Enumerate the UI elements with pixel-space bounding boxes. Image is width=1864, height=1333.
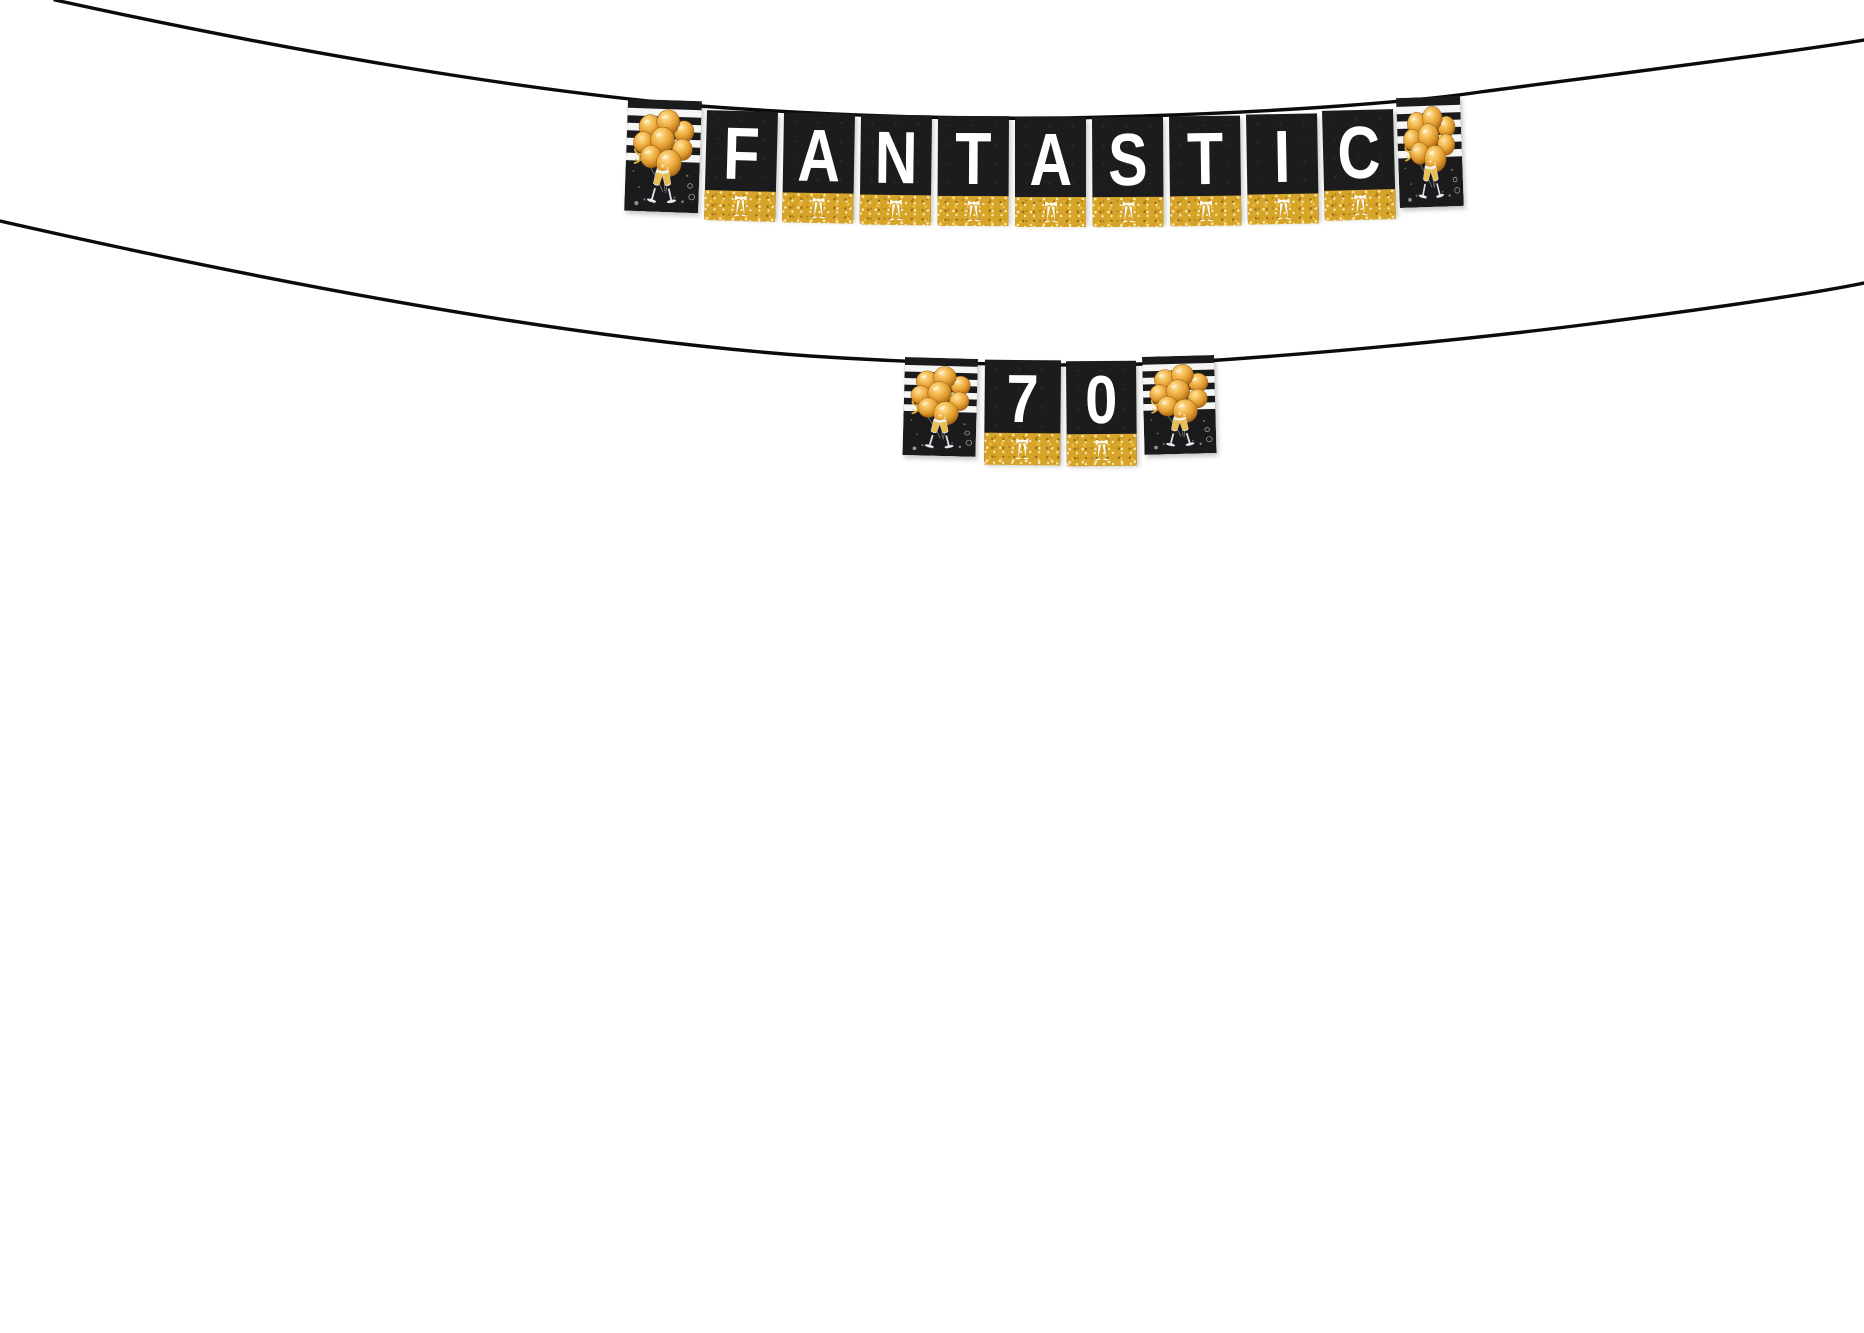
champagne-toast-icon <box>1041 199 1061 225</box>
champagne-toast-icon <box>1350 192 1371 219</box>
pennant-letter: T <box>1186 116 1223 196</box>
letter-pennant: 0 <box>1066 361 1137 465</box>
gold-glitter-band <box>782 192 854 223</box>
pennant-letter: F <box>722 111 760 192</box>
letter-pennant: F <box>704 110 778 218</box>
champagne-toast-icon <box>885 197 905 223</box>
letter-area: A <box>1015 117 1086 197</box>
letter-pennant: S <box>1092 117 1164 223</box>
letter-pennant: A <box>782 112 855 219</box>
letter-area: A <box>783 112 855 193</box>
banner-product-image: F A <box>0 0 1864 1333</box>
letter-area: S <box>1092 117 1163 197</box>
pennant-letter: S <box>1108 117 1148 197</box>
gold-balloons-champagne-graphic <box>624 99 702 214</box>
hanging-strings <box>0 0 1864 1333</box>
champagne-toast-icon <box>1118 199 1138 225</box>
letter-pennant: A <box>1015 117 1086 223</box>
letter-area: N <box>860 115 932 196</box>
pennant-letter: T <box>955 116 992 196</box>
champagne-toast-icon <box>1012 436 1032 462</box>
champagne-toast-icon <box>1273 196 1293 222</box>
balloon-champagne-pennant <box>902 357 978 457</box>
pennant-letter: 0 <box>1085 361 1118 434</box>
balloon-champagne-pennant <box>1142 355 1217 455</box>
champagne-toast-icon <box>963 198 983 224</box>
gold-glitter-band <box>1247 193 1319 224</box>
gold-glitter-band <box>937 196 1008 226</box>
gold-balloons-champagne-graphic <box>1142 355 1217 455</box>
pennant-letter: N <box>874 115 918 196</box>
letter-area: F <box>705 110 778 192</box>
gold-glitter-band <box>984 433 1060 466</box>
hanging-string-top <box>55 0 1864 118</box>
gold-glitter-band <box>1324 189 1396 221</box>
gold-glitter-band <box>704 190 776 222</box>
champagne-toast-icon <box>1196 198 1216 224</box>
pennant-letter: C <box>1336 109 1381 190</box>
champagne-toast-icon <box>1092 437 1112 463</box>
hanging-string-bottom <box>0 221 1864 365</box>
letter-pennant: T <box>937 116 1009 222</box>
balloon-champagne-pennant <box>624 99 702 214</box>
gold-glitter-band <box>1092 197 1163 227</box>
champagne-toast-icon <box>730 193 751 220</box>
letter-pennant: C <box>1322 109 1396 217</box>
letter-pennant: T <box>1169 116 1241 223</box>
gold-glitter-band <box>1015 197 1086 227</box>
letter-pennant: I <box>1246 113 1319 220</box>
letter-pennant: 7 <box>984 360 1061 464</box>
letter-area: 7 <box>984 360 1061 434</box>
champagne-toast-icon <box>808 195 828 221</box>
gold-glitter-band <box>1067 434 1137 467</box>
balloon-champagne-pennant <box>1396 96 1464 208</box>
letter-area: 0 <box>1066 361 1137 435</box>
pennant-letter: I <box>1273 114 1291 194</box>
letter-pennant: N <box>860 115 932 222</box>
pennant-letter: A <box>797 113 841 194</box>
pennant-letter: 7 <box>1006 360 1039 433</box>
gold-balloons-champagne-graphic <box>1396 96 1464 208</box>
letter-area: C <box>1322 109 1395 191</box>
gold-balloons-champagne-graphic <box>902 357 978 457</box>
letter-area: T <box>1169 116 1241 197</box>
letter-area: T <box>938 116 1009 196</box>
gold-glitter-band <box>860 195 931 226</box>
gold-glitter-band <box>1170 196 1241 227</box>
letter-area: I <box>1246 113 1318 194</box>
pennant-letter: A <box>1029 117 1072 197</box>
